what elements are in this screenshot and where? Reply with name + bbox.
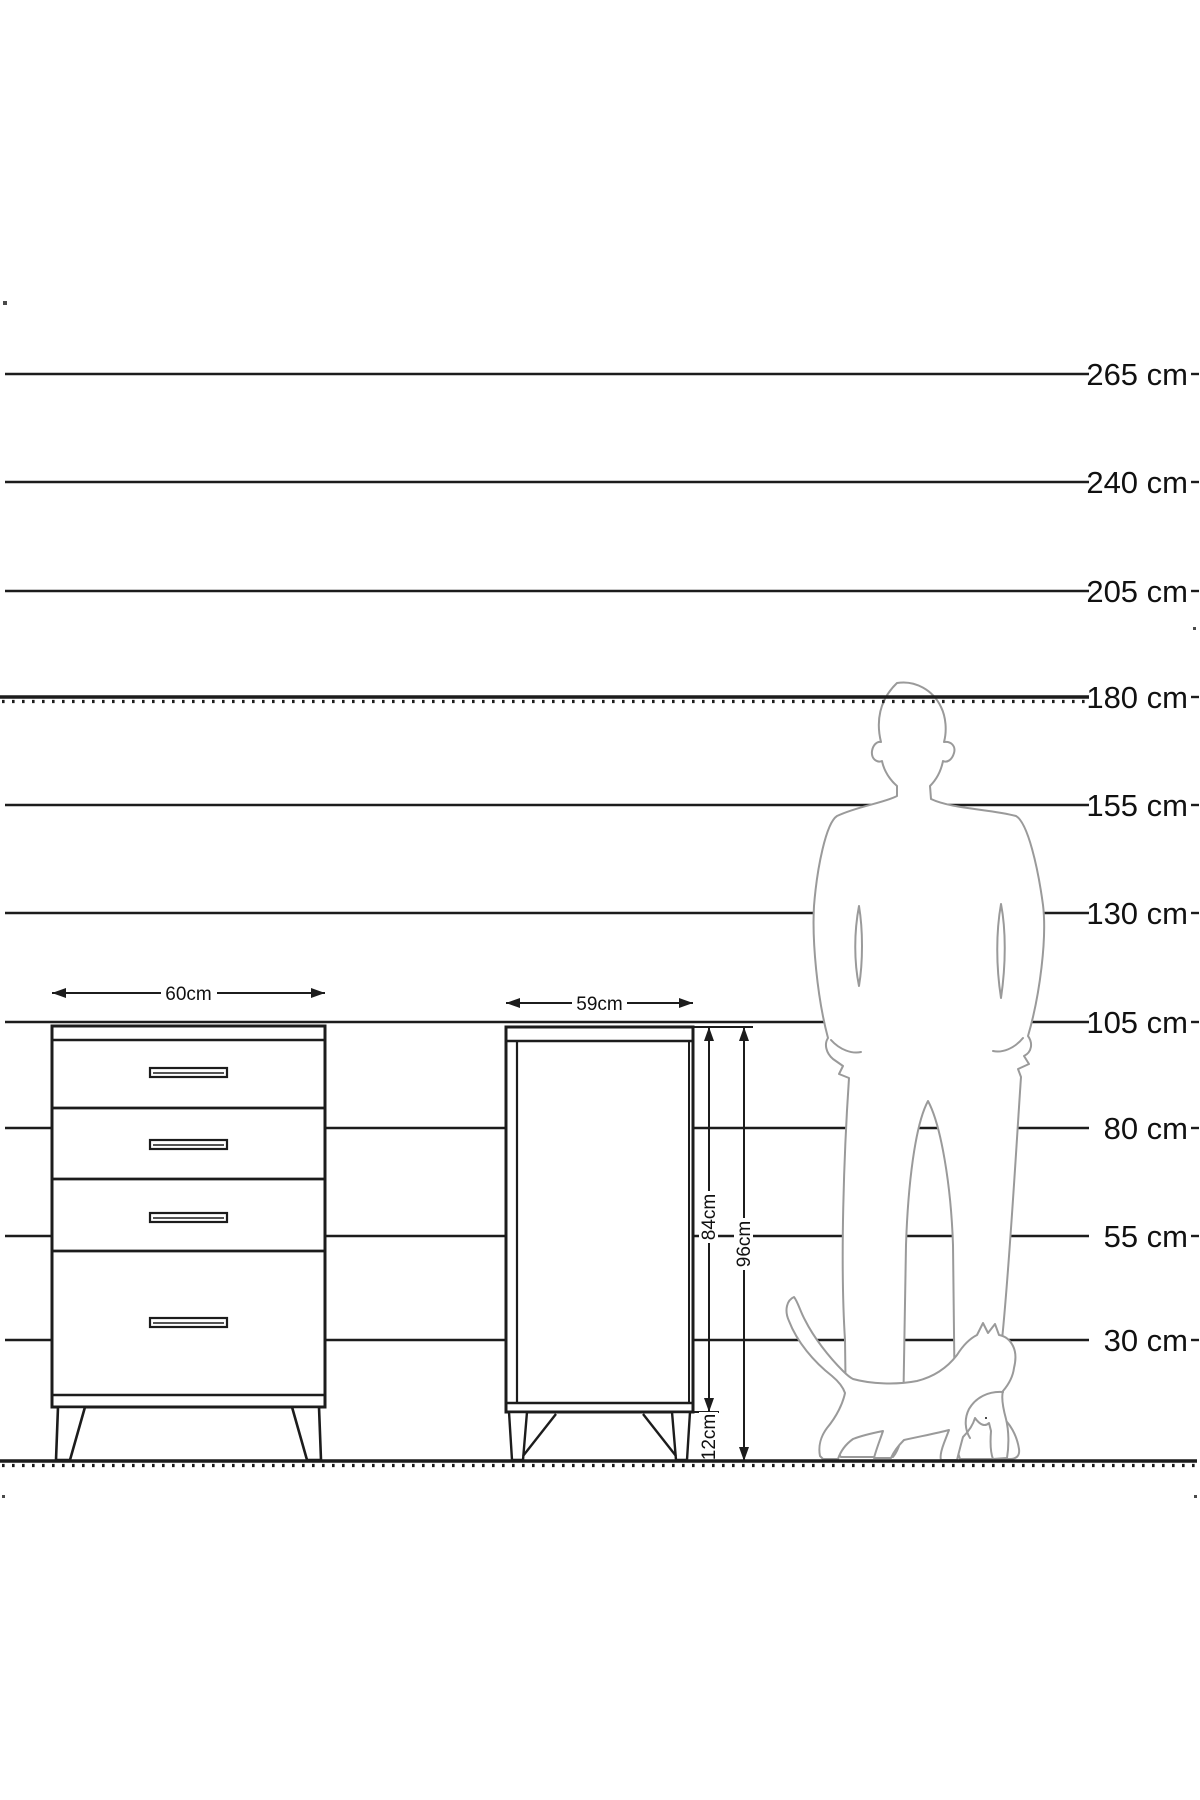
artifact-dot [985,1417,987,1419]
cabinet-side-view [506,1027,693,1460]
furniture-height-comparison-diagram: 265 cm240 cm205 cm180 cm155 cm130 cm105 … [0,0,1200,1800]
dimension-width-59cm: 59cm [506,993,693,1015]
dimension-total-96cm: 96cm [734,1027,755,1461]
dresser-front-view [52,1026,325,1460]
dresser-width-label: 60cm [165,984,211,1005]
height-label-105: 105 cm [1086,1005,1188,1040]
arrowhead-right [679,998,693,1008]
cabinet-leg-height-label: 12cm [699,1414,720,1460]
arrowhead-left [506,998,520,1008]
artifact-dot [1194,1495,1197,1498]
diagram-canvas: 265 cm240 cm205 cm180 cm155 cm130 cm105 … [0,0,1200,1800]
cabinet-total-height-label: 96cm [734,1221,755,1267]
cabinet-left-leg-brace [523,1414,556,1456]
height-label-30: 30 cm [1104,1323,1188,1358]
height-label-55: 55 cm [1104,1219,1188,1254]
dimension-body-84cm: 84cm [699,1027,720,1412]
height-label-205: 205 cm [1086,574,1188,609]
artifact-dot [1193,627,1196,630]
height-label-180: 180 cm [1086,680,1188,715]
dresser-right-leg [292,1407,321,1460]
drawer-handle-2 [150,1140,227,1149]
cabinet-width-label: 59cm [576,994,622,1015]
height-label-80: 80 cm [1104,1111,1188,1146]
artifact-dot [2,1495,5,1498]
cabinet-side-body [506,1027,693,1412]
arrowhead-left [52,988,66,998]
cabinet-body-height-label: 84cm [699,1194,720,1240]
dimension-leg-12cm: 12cm [699,1412,720,1462]
artifact-dot [3,301,7,305]
drawer-handle-4 [150,1318,227,1327]
arrowhead-right [311,988,325,998]
height-label-265: 265 cm [1086,357,1188,392]
height-label-240: 240 cm [1086,465,1188,500]
drawer-handle-3 [150,1213,227,1222]
height-label-130: 130 cm [1086,896,1188,931]
cabinet-right-leg-brace [643,1414,676,1456]
drawer-handle-1 [150,1068,227,1077]
dimension-heights: 84cm 96cm 12cm [693,1027,755,1462]
dresser-left-leg [56,1407,85,1460]
height-label-155: 155 cm [1086,788,1188,823]
dimension-width-60cm: 60cm [52,983,325,1005]
